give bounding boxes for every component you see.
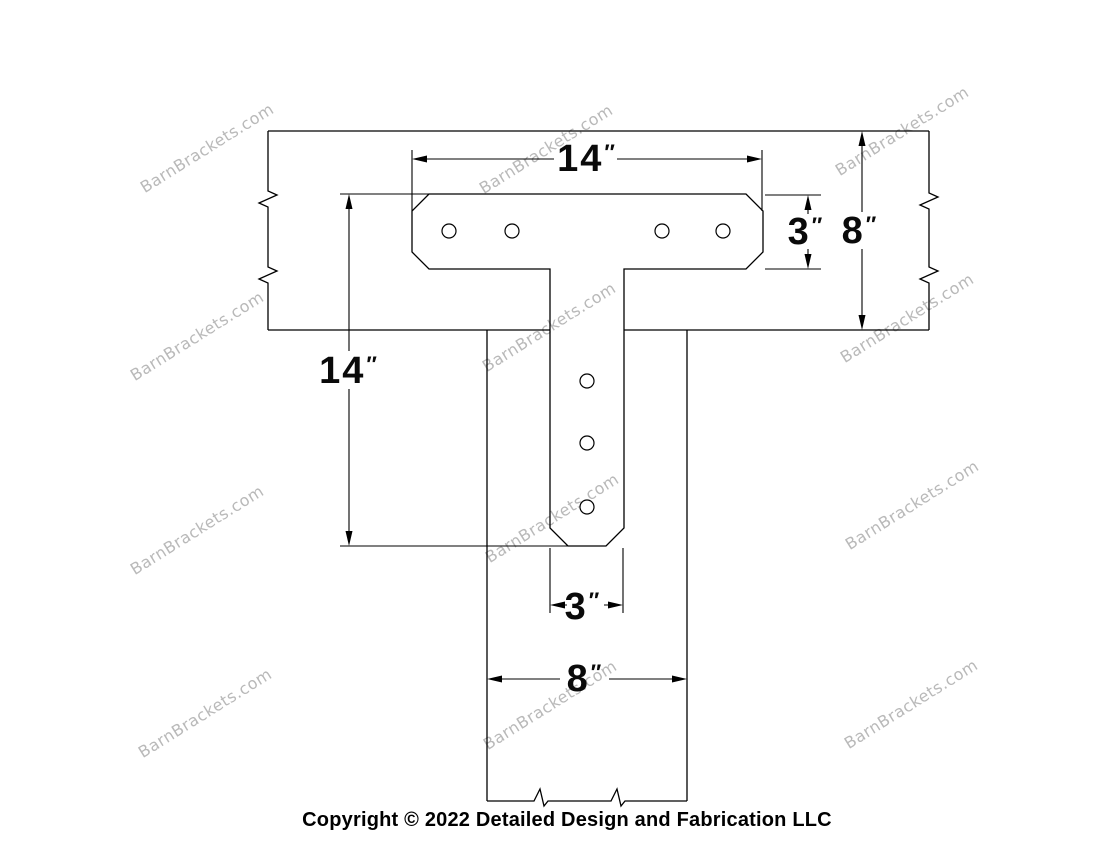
timber-outlines — [259, 131, 938, 806]
dimension-bracket-height: 14″ — [319, 194, 568, 546]
dimension-label: 3″ — [565, 586, 600, 628]
arrowhead-top — [859, 131, 866, 146]
bolt-hole — [442, 224, 456, 238]
dimension-label: 8″ — [567, 658, 602, 700]
vertical-beam-bottom-edge-with-breaks — [487, 789, 687, 806]
horizontal-beam-left-edge-with-breaks — [259, 131, 277, 330]
copyright-text: Copyright © 2022 Detailed Design and Fab… — [34, 809, 1100, 832]
bolt-hole — [716, 224, 730, 238]
arrowhead-left — [487, 676, 502, 683]
bracket-drawing-page: BarnBrackets.com BarnBrackets.com BarnBr… — [0, 0, 1100, 850]
bolt-hole — [580, 500, 594, 514]
dimension-horizontal-beam-depth: 8″ — [842, 131, 877, 330]
bolt-hole — [655, 224, 669, 238]
dimension-stem-width: 3″ — [550, 548, 623, 628]
t-bracket-plate — [412, 194, 763, 546]
dimension-bracket-width: 14″ — [412, 138, 762, 211]
bracket-outline — [412, 194, 763, 546]
arrowhead-left — [550, 602, 565, 609]
t-bracket-technical-drawing: 14″ 14″ 3″ 8″ — [0, 0, 1100, 850]
arrowhead-bottom — [805, 254, 812, 269]
bolt-hole — [580, 374, 594, 388]
dimension-label: 14″ — [319, 350, 377, 392]
bolt-hole — [580, 436, 594, 450]
dimension-vertical-beam-width: 8″ — [487, 658, 687, 700]
horizontal-beam-right-edge-with-breaks — [920, 131, 938, 330]
arrowhead-right — [747, 156, 762, 163]
arrowhead-bottom — [346, 531, 353, 546]
arrowhead-right — [608, 602, 623, 609]
arrowhead-left — [412, 156, 427, 163]
arrowhead-top — [805, 195, 812, 210]
dimension-top-arm-depth: 3″ — [765, 195, 823, 269]
dimension-label: 14″ — [557, 138, 615, 180]
arrowhead-right — [672, 676, 687, 683]
arrowhead-bottom — [859, 315, 866, 330]
arrowhead-top — [346, 194, 353, 209]
dimension-label: 3″ — [788, 211, 823, 253]
dimension-label: 8″ — [842, 210, 877, 252]
bolt-hole — [505, 224, 519, 238]
